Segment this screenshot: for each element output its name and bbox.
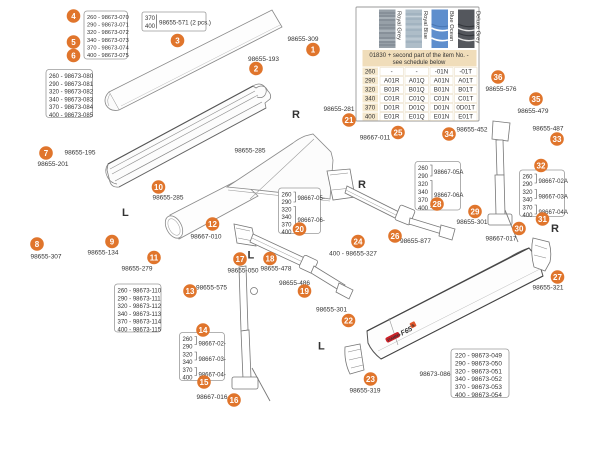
svg-text:-01N: -01N bbox=[435, 69, 448, 76]
svg-text:320: 320 bbox=[523, 190, 534, 196]
svg-text:400: 400 bbox=[523, 213, 534, 219]
svg-text:290: 290 bbox=[183, 345, 194, 351]
svg-text:B01R: B01R bbox=[384, 87, 400, 94]
svg-text:D01N: D01N bbox=[434, 105, 450, 112]
svg-text:C01R: C01R bbox=[384, 96, 400, 103]
svg-text:370 - 98673-084: 370 - 98673-084 bbox=[49, 105, 94, 111]
svg-text:98673-086: 98673-086 bbox=[419, 371, 450, 378]
svg-text:B01Q: B01Q bbox=[409, 87, 425, 94]
svg-text:400 - 98673-054: 400 - 98673-054 bbox=[455, 392, 502, 399]
svg-text:340 - 98673-052: 340 - 98673-052 bbox=[455, 376, 502, 383]
svg-text:98655-309: 98655-309 bbox=[287, 36, 318, 43]
svg-text:E01T: E01T bbox=[458, 114, 473, 121]
svg-text:400: 400 bbox=[183, 376, 194, 382]
svg-text:98655-050: 98655-050 bbox=[227, 268, 258, 275]
svg-text:370: 370 bbox=[145, 16, 156, 22]
svg-text:33: 33 bbox=[553, 135, 562, 144]
svg-text:C01Q: C01Q bbox=[409, 96, 425, 103]
svg-text:25: 25 bbox=[394, 129, 403, 138]
svg-text:260: 260 bbox=[183, 337, 194, 343]
svg-text:370: 370 bbox=[523, 206, 534, 212]
svg-text:98655-307: 98655-307 bbox=[30, 254, 61, 261]
svg-text:260 - 98673-070: 260 - 98673-070 bbox=[87, 15, 129, 21]
svg-text:290 - 98673-050: 290 - 98673-050 bbox=[455, 360, 502, 367]
svg-text:D01Q: D01Q bbox=[409, 105, 425, 112]
svg-text:260: 260 bbox=[418, 166, 429, 172]
svg-text:98655-576: 98655-576 bbox=[485, 86, 516, 93]
svg-text:260: 260 bbox=[282, 193, 293, 199]
svg-text:320 - 98673-112: 320 - 98673-112 bbox=[118, 304, 162, 310]
svg-text:C01N: C01N bbox=[434, 96, 450, 103]
svg-text:20: 20 bbox=[295, 225, 304, 234]
svg-text:16: 16 bbox=[230, 396, 239, 405]
svg-text:27: 27 bbox=[553, 273, 562, 282]
svg-text:370: 370 bbox=[418, 198, 429, 204]
svg-text:98655-487: 98655-487 bbox=[532, 126, 563, 133]
svg-text:260 - 98673-080: 260 - 98673-080 bbox=[49, 74, 94, 80]
svg-text:10: 10 bbox=[154, 183, 163, 192]
svg-text:9: 9 bbox=[110, 238, 115, 247]
svg-text:R: R bbox=[551, 223, 559, 235]
svg-text:32: 32 bbox=[537, 162, 546, 171]
svg-text:see schedule below: see schedule below bbox=[393, 60, 446, 66]
svg-text:R: R bbox=[358, 179, 366, 191]
svg-text:98655-134: 98655-134 bbox=[87, 250, 118, 257]
svg-text:30: 30 bbox=[515, 225, 524, 234]
svg-text:L: L bbox=[248, 250, 255, 262]
svg-text:98655-285: 98655-285 bbox=[152, 195, 183, 202]
svg-text:98655-877: 98655-877 bbox=[400, 238, 431, 245]
svg-text:98655-319: 98655-319 bbox=[349, 388, 380, 395]
svg-text:98655-279: 98655-279 bbox=[121, 266, 152, 273]
svg-text:290: 290 bbox=[365, 78, 376, 85]
svg-text:98655-195: 98655-195 bbox=[64, 150, 95, 157]
svg-text:370: 370 bbox=[282, 223, 293, 229]
svg-text:A01R: A01R bbox=[384, 78, 400, 85]
svg-text:290: 290 bbox=[282, 200, 293, 206]
svg-text:370 - 98673-074: 370 - 98673-074 bbox=[87, 45, 129, 51]
svg-text:Royal Grey: Royal Grey bbox=[396, 11, 402, 40]
svg-text:28: 28 bbox=[433, 200, 442, 209]
svg-text:290 - 98673-071: 290 - 98673-071 bbox=[87, 23, 129, 29]
svg-text:320: 320 bbox=[183, 353, 194, 359]
svg-text:400 - 98673-085: 400 - 98673-085 bbox=[49, 113, 94, 119]
svg-text:2: 2 bbox=[254, 65, 259, 74]
svg-text:400 - 98655-327: 400 - 98655-327 bbox=[329, 251, 377, 258]
svg-text:98655-478: 98655-478 bbox=[260, 266, 291, 273]
svg-text:400: 400 bbox=[418, 206, 429, 212]
svg-text:400: 400 bbox=[282, 230, 293, 236]
svg-text:01830 + second part of the ite: 01830 + second part of the item No. - bbox=[369, 53, 468, 59]
svg-text:36: 36 bbox=[494, 73, 503, 82]
svg-text:19: 19 bbox=[300, 287, 309, 296]
svg-text:3: 3 bbox=[175, 37, 180, 46]
svg-text:98667-02-: 98667-02- bbox=[199, 342, 226, 348]
svg-text:98667-02A: 98667-02A bbox=[539, 179, 568, 185]
svg-text:320: 320 bbox=[282, 208, 293, 214]
svg-text:98655-479: 98655-479 bbox=[517, 108, 548, 115]
svg-text:260: 260 bbox=[365, 69, 376, 76]
svg-text:7: 7 bbox=[44, 149, 49, 158]
svg-text:29: 29 bbox=[471, 208, 480, 217]
svg-text:290: 290 bbox=[523, 182, 534, 188]
svg-text:11: 11 bbox=[150, 254, 159, 263]
svg-text:400 - 98673-075: 400 - 98673-075 bbox=[87, 53, 129, 59]
svg-text:Deluxe Grey: Deluxe Grey bbox=[475, 11, 481, 43]
svg-text:290: 290 bbox=[418, 174, 429, 180]
svg-text:98655-301: 98655-301 bbox=[456, 219, 487, 226]
svg-text:98655-321: 98655-321 bbox=[532, 285, 563, 292]
svg-text:26: 26 bbox=[391, 232, 400, 241]
svg-text:13: 13 bbox=[186, 287, 195, 296]
svg-text:98655-571 (2 pcs.): 98655-571 (2 pcs.) bbox=[159, 20, 211, 27]
svg-text:98667-010: 98667-010 bbox=[190, 234, 221, 241]
svg-text:98667-05A: 98667-05A bbox=[434, 170, 463, 176]
svg-text:23: 23 bbox=[366, 375, 375, 384]
svg-text:98655-452: 98655-452 bbox=[456, 127, 487, 134]
svg-text:370 - 98673-114: 370 - 98673-114 bbox=[118, 320, 162, 326]
svg-text:340: 340 bbox=[418, 190, 429, 196]
svg-text:A01Q: A01Q bbox=[409, 78, 425, 85]
svg-text:Royal Blue: Royal Blue bbox=[422, 11, 428, 39]
svg-text:L: L bbox=[122, 207, 129, 219]
svg-text:98655-285: 98655-285 bbox=[234, 148, 265, 155]
svg-text:1: 1 bbox=[311, 46, 316, 55]
svg-text:98655-281: 98655-281 bbox=[323, 106, 354, 113]
svg-text:5: 5 bbox=[71, 38, 76, 47]
svg-text:L: L bbox=[318, 341, 325, 353]
svg-text:220 - 98673-049: 220 - 98673-049 bbox=[455, 353, 502, 360]
svg-text:17: 17 bbox=[236, 255, 245, 264]
svg-text:320: 320 bbox=[418, 182, 429, 188]
svg-text:320 - 98673-082: 320 - 98673-082 bbox=[49, 90, 94, 96]
svg-text:C01T: C01T bbox=[458, 96, 473, 103]
svg-text:Blue Ocean: Blue Ocean bbox=[448, 11, 454, 41]
svg-text:A01T: A01T bbox=[458, 78, 473, 85]
svg-text:260 - 98673-110: 260 - 98673-110 bbox=[118, 289, 162, 295]
svg-text:320 - 98673-051: 320 - 98673-051 bbox=[455, 368, 502, 375]
svg-text:18: 18 bbox=[266, 255, 275, 264]
svg-text:D01R: D01R bbox=[384, 105, 400, 112]
svg-text:370: 370 bbox=[365, 105, 376, 112]
svg-text:400: 400 bbox=[145, 24, 156, 30]
svg-text:98655-301: 98655-301 bbox=[316, 307, 347, 314]
svg-text:98667-011: 98667-011 bbox=[360, 135, 391, 142]
svg-text:98667-03-: 98667-03- bbox=[199, 357, 226, 363]
svg-text:22: 22 bbox=[344, 317, 353, 326]
svg-text:12: 12 bbox=[208, 220, 217, 229]
svg-text:-01T: -01T bbox=[459, 69, 472, 76]
svg-text:370: 370 bbox=[183, 368, 194, 374]
svg-text:B01N: B01N bbox=[434, 87, 449, 94]
svg-text:E01R: E01R bbox=[384, 114, 400, 121]
svg-text:8: 8 bbox=[35, 240, 40, 249]
svg-text:98655-575: 98655-575 bbox=[196, 285, 227, 292]
svg-text:340 - 98673-113: 340 - 98673-113 bbox=[118, 312, 162, 318]
svg-text:320 - 98673-072: 320 - 98673-072 bbox=[87, 30, 129, 36]
svg-text:0D01T: 0D01T bbox=[456, 105, 475, 112]
svg-text:98667-017: 98667-017 bbox=[485, 236, 516, 243]
svg-text:340: 340 bbox=[523, 198, 534, 204]
svg-text:290 - 98673-111: 290 - 98673-111 bbox=[118, 296, 162, 302]
svg-text:A01N: A01N bbox=[434, 78, 449, 85]
svg-text:14: 14 bbox=[199, 326, 208, 335]
svg-text:340: 340 bbox=[282, 215, 293, 221]
svg-text:340 - 98673-083: 340 - 98673-083 bbox=[49, 97, 94, 103]
svg-text:98667-05-: 98667-05- bbox=[298, 196, 325, 202]
svg-text:98667-03A: 98667-03A bbox=[539, 195, 568, 201]
svg-text:E01N: E01N bbox=[434, 114, 449, 121]
svg-text:-: - bbox=[391, 69, 393, 76]
svg-text:340: 340 bbox=[183, 360, 194, 366]
svg-text:98667-016: 98667-016 bbox=[196, 394, 227, 401]
svg-text:34: 34 bbox=[445, 130, 454, 139]
svg-text:6: 6 bbox=[71, 52, 76, 61]
svg-text:-: - bbox=[416, 69, 418, 76]
svg-text:B01T: B01T bbox=[458, 87, 473, 94]
svg-text:260: 260 bbox=[523, 175, 534, 181]
svg-text:98655-193: 98655-193 bbox=[248, 56, 279, 63]
svg-text:R: R bbox=[292, 109, 300, 121]
svg-text:340: 340 bbox=[365, 96, 376, 103]
svg-text:290 - 98673-081: 290 - 98673-081 bbox=[49, 82, 94, 88]
svg-text:24: 24 bbox=[354, 238, 363, 247]
svg-text:400: 400 bbox=[365, 114, 376, 121]
svg-text:98655-201: 98655-201 bbox=[37, 161, 68, 168]
svg-text:15: 15 bbox=[200, 378, 209, 387]
svg-text:320: 320 bbox=[365, 87, 376, 94]
svg-text:35: 35 bbox=[532, 95, 541, 104]
svg-text:4: 4 bbox=[71, 12, 76, 21]
svg-text:E01Q: E01Q bbox=[409, 114, 425, 121]
svg-text:340 - 98673-073: 340 - 98673-073 bbox=[87, 38, 129, 44]
svg-text:31: 31 bbox=[538, 215, 547, 224]
svg-text:400 - 98673-115: 400 - 98673-115 bbox=[118, 328, 162, 334]
svg-text:21: 21 bbox=[345, 116, 354, 125]
svg-text:370 - 98673-053: 370 - 98673-053 bbox=[455, 384, 502, 391]
